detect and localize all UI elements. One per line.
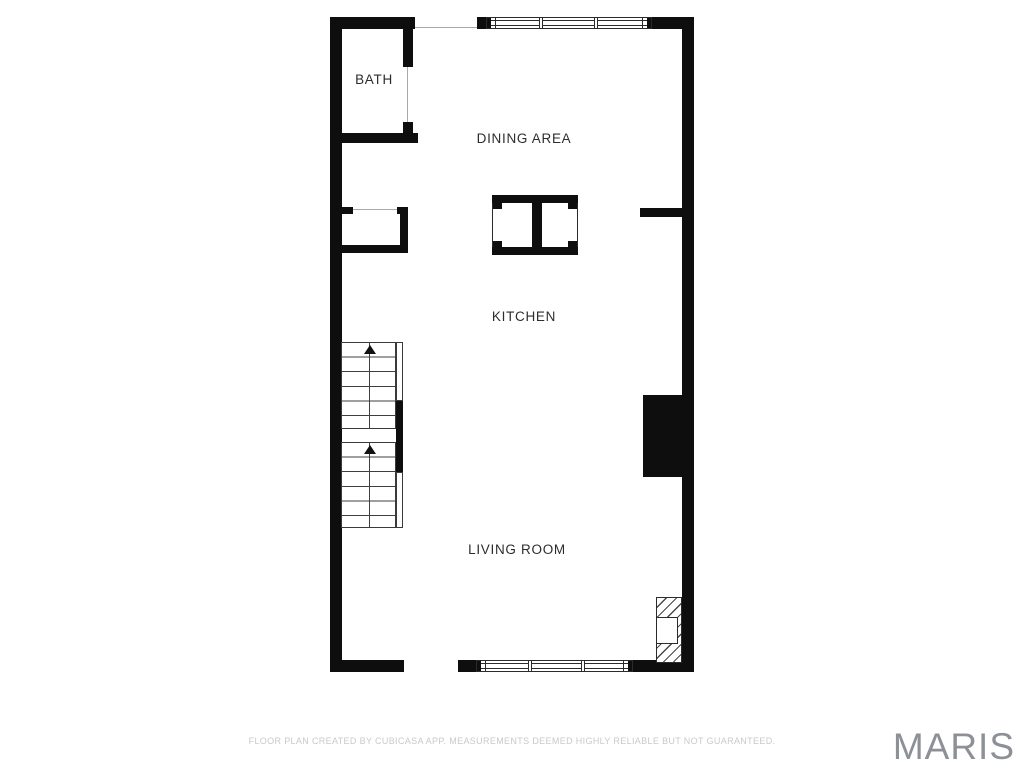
chimney-block bbox=[643, 395, 682, 477]
closet-wall-top-corner bbox=[397, 207, 408, 214]
window-mullion bbox=[528, 661, 532, 671]
stair-rail-lower bbox=[396, 472, 403, 528]
counter-corner-stub bbox=[492, 203, 502, 209]
window-mullion bbox=[594, 18, 598, 28]
disclaimer-text: FLOOR PLAN CREATED BY CUBICASA APP. MEAS… bbox=[0, 736, 1024, 746]
bath-wall-right-lower bbox=[403, 122, 413, 133]
closet-wall-bottom bbox=[342, 245, 408, 253]
stair-rail-upper bbox=[396, 342, 403, 401]
counter-wall-middle bbox=[532, 195, 542, 255]
stairs-up-arrow-icon bbox=[364, 345, 376, 354]
window-top bbox=[486, 17, 652, 29]
outer-wall-right bbox=[682, 17, 694, 672]
counter-corner-stub bbox=[492, 241, 502, 247]
closet-wall-top-stub bbox=[342, 207, 353, 214]
closet-wall-right bbox=[400, 214, 408, 246]
bath-wall-bottom bbox=[330, 133, 418, 143]
wall-opening-line-top bbox=[415, 27, 477, 28]
counter-side-line bbox=[577, 203, 578, 247]
outer-wall-top-stub bbox=[477, 17, 486, 29]
fireplace-opening bbox=[656, 617, 678, 644]
outer-wall-bottom-left bbox=[330, 660, 404, 672]
window-frame-line bbox=[485, 661, 486, 671]
counter-side-line bbox=[492, 203, 493, 247]
room-label-dining-area: DINING AREA bbox=[444, 131, 604, 146]
room-label-kitchen: KITCHEN bbox=[444, 309, 604, 324]
window-frame-line bbox=[642, 18, 643, 28]
window-end-post bbox=[647, 18, 651, 28]
window-end-post bbox=[628, 661, 632, 671]
room-label-living-room: LIVING ROOM bbox=[437, 542, 597, 557]
maris-logo: MARIS bbox=[893, 726, 1015, 768]
kitchen-counter-unit bbox=[492, 195, 578, 255]
stairs-up-arrow-icon bbox=[364, 445, 376, 454]
floorplan-canvas: BATH DINING AREA KITCHEN LIVING ROOM FLO… bbox=[0, 0, 1024, 768]
outer-wall-top-bath bbox=[330, 17, 415, 29]
room-label-bath: BATH bbox=[334, 72, 414, 87]
window-end-post bbox=[477, 661, 481, 671]
bath-wall-right-upper bbox=[403, 29, 413, 67]
stair-walkline bbox=[369, 343, 370, 428]
stair-walkline bbox=[369, 443, 370, 527]
stair-flight-upper bbox=[341, 342, 396, 429]
fireplace-hatch-unit bbox=[656, 597, 682, 663]
window-mullion bbox=[539, 18, 543, 28]
stair-flight-lower bbox=[341, 442, 396, 528]
window-frame-line bbox=[623, 661, 624, 671]
window-bottom bbox=[476, 660, 633, 672]
outer-wall-bottom-mid bbox=[458, 660, 476, 672]
dining-kitchen-wall-stub bbox=[640, 208, 682, 217]
stair-side-wall bbox=[396, 401, 403, 472]
closet-opening-line bbox=[353, 209, 397, 210]
window-glass-lines bbox=[487, 20, 651, 26]
outer-wall-top-right bbox=[652, 17, 694, 29]
window-frame-line bbox=[495, 18, 496, 28]
window-end-post bbox=[487, 18, 491, 28]
window-mullion bbox=[581, 661, 585, 671]
window-glass-lines bbox=[477, 663, 632, 669]
